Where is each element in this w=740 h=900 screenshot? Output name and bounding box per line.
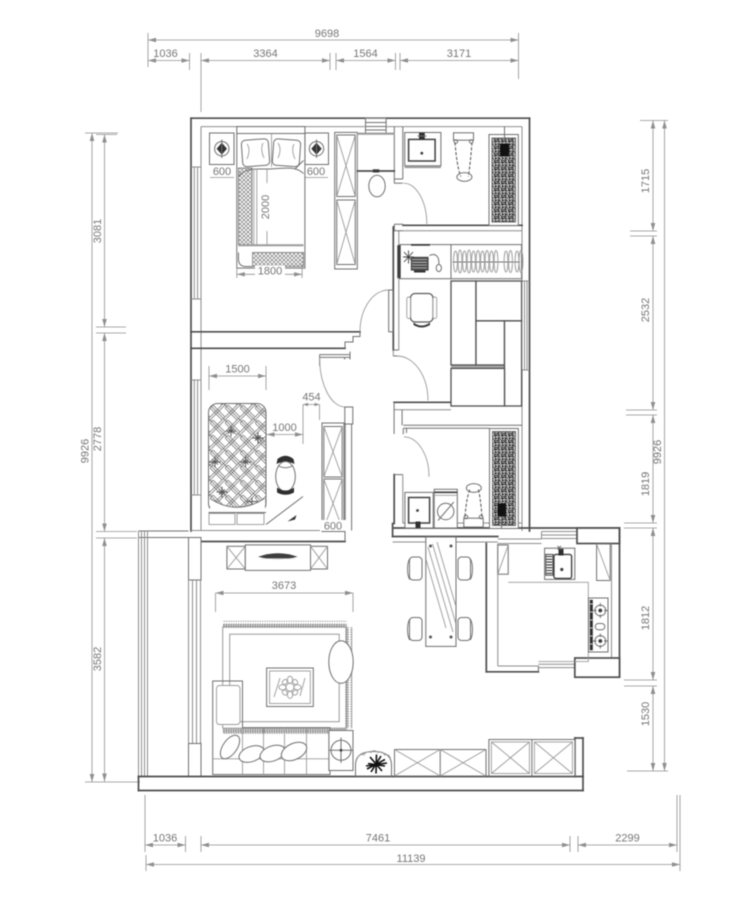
svg-text:2299: 2299 — [615, 833, 639, 845]
svg-text:600: 600 — [324, 521, 342, 533]
svg-text:1530: 1530 — [640, 702, 652, 726]
svg-text:7461: 7461 — [366, 833, 390, 845]
svg-text:3364: 3364 — [253, 48, 277, 60]
svg-text:1036: 1036 — [153, 833, 177, 845]
svg-text:454: 454 — [302, 392, 320, 404]
svg-text:1500: 1500 — [225, 364, 249, 376]
svg-text:1819: 1819 — [640, 472, 652, 496]
svg-text:1036: 1036 — [153, 48, 177, 60]
svg-text:9698: 9698 — [315, 28, 339, 40]
svg-text:2000: 2000 — [260, 195, 272, 219]
svg-text:11139: 11139 — [397, 853, 426, 865]
svg-text:3582: 3582 — [92, 647, 104, 671]
svg-text:3673: 3673 — [272, 580, 296, 592]
svg-text:9926: 9926 — [80, 439, 92, 463]
svg-text:1812: 1812 — [640, 606, 652, 630]
svg-text:1800: 1800 — [258, 266, 282, 278]
svg-text:2532: 2532 — [640, 298, 652, 322]
svg-text:3171: 3171 — [447, 48, 471, 60]
svg-text:2778: 2778 — [92, 427, 104, 451]
svg-text:1564: 1564 — [353, 48, 377, 60]
svg-text:600: 600 — [307, 166, 325, 178]
svg-text:1715: 1715 — [640, 169, 652, 193]
svg-text:1000: 1000 — [272, 422, 296, 434]
svg-text:3081: 3081 — [92, 219, 104, 243]
svg-text:9926: 9926 — [652, 440, 664, 464]
svg-text:600: 600 — [213, 166, 231, 178]
